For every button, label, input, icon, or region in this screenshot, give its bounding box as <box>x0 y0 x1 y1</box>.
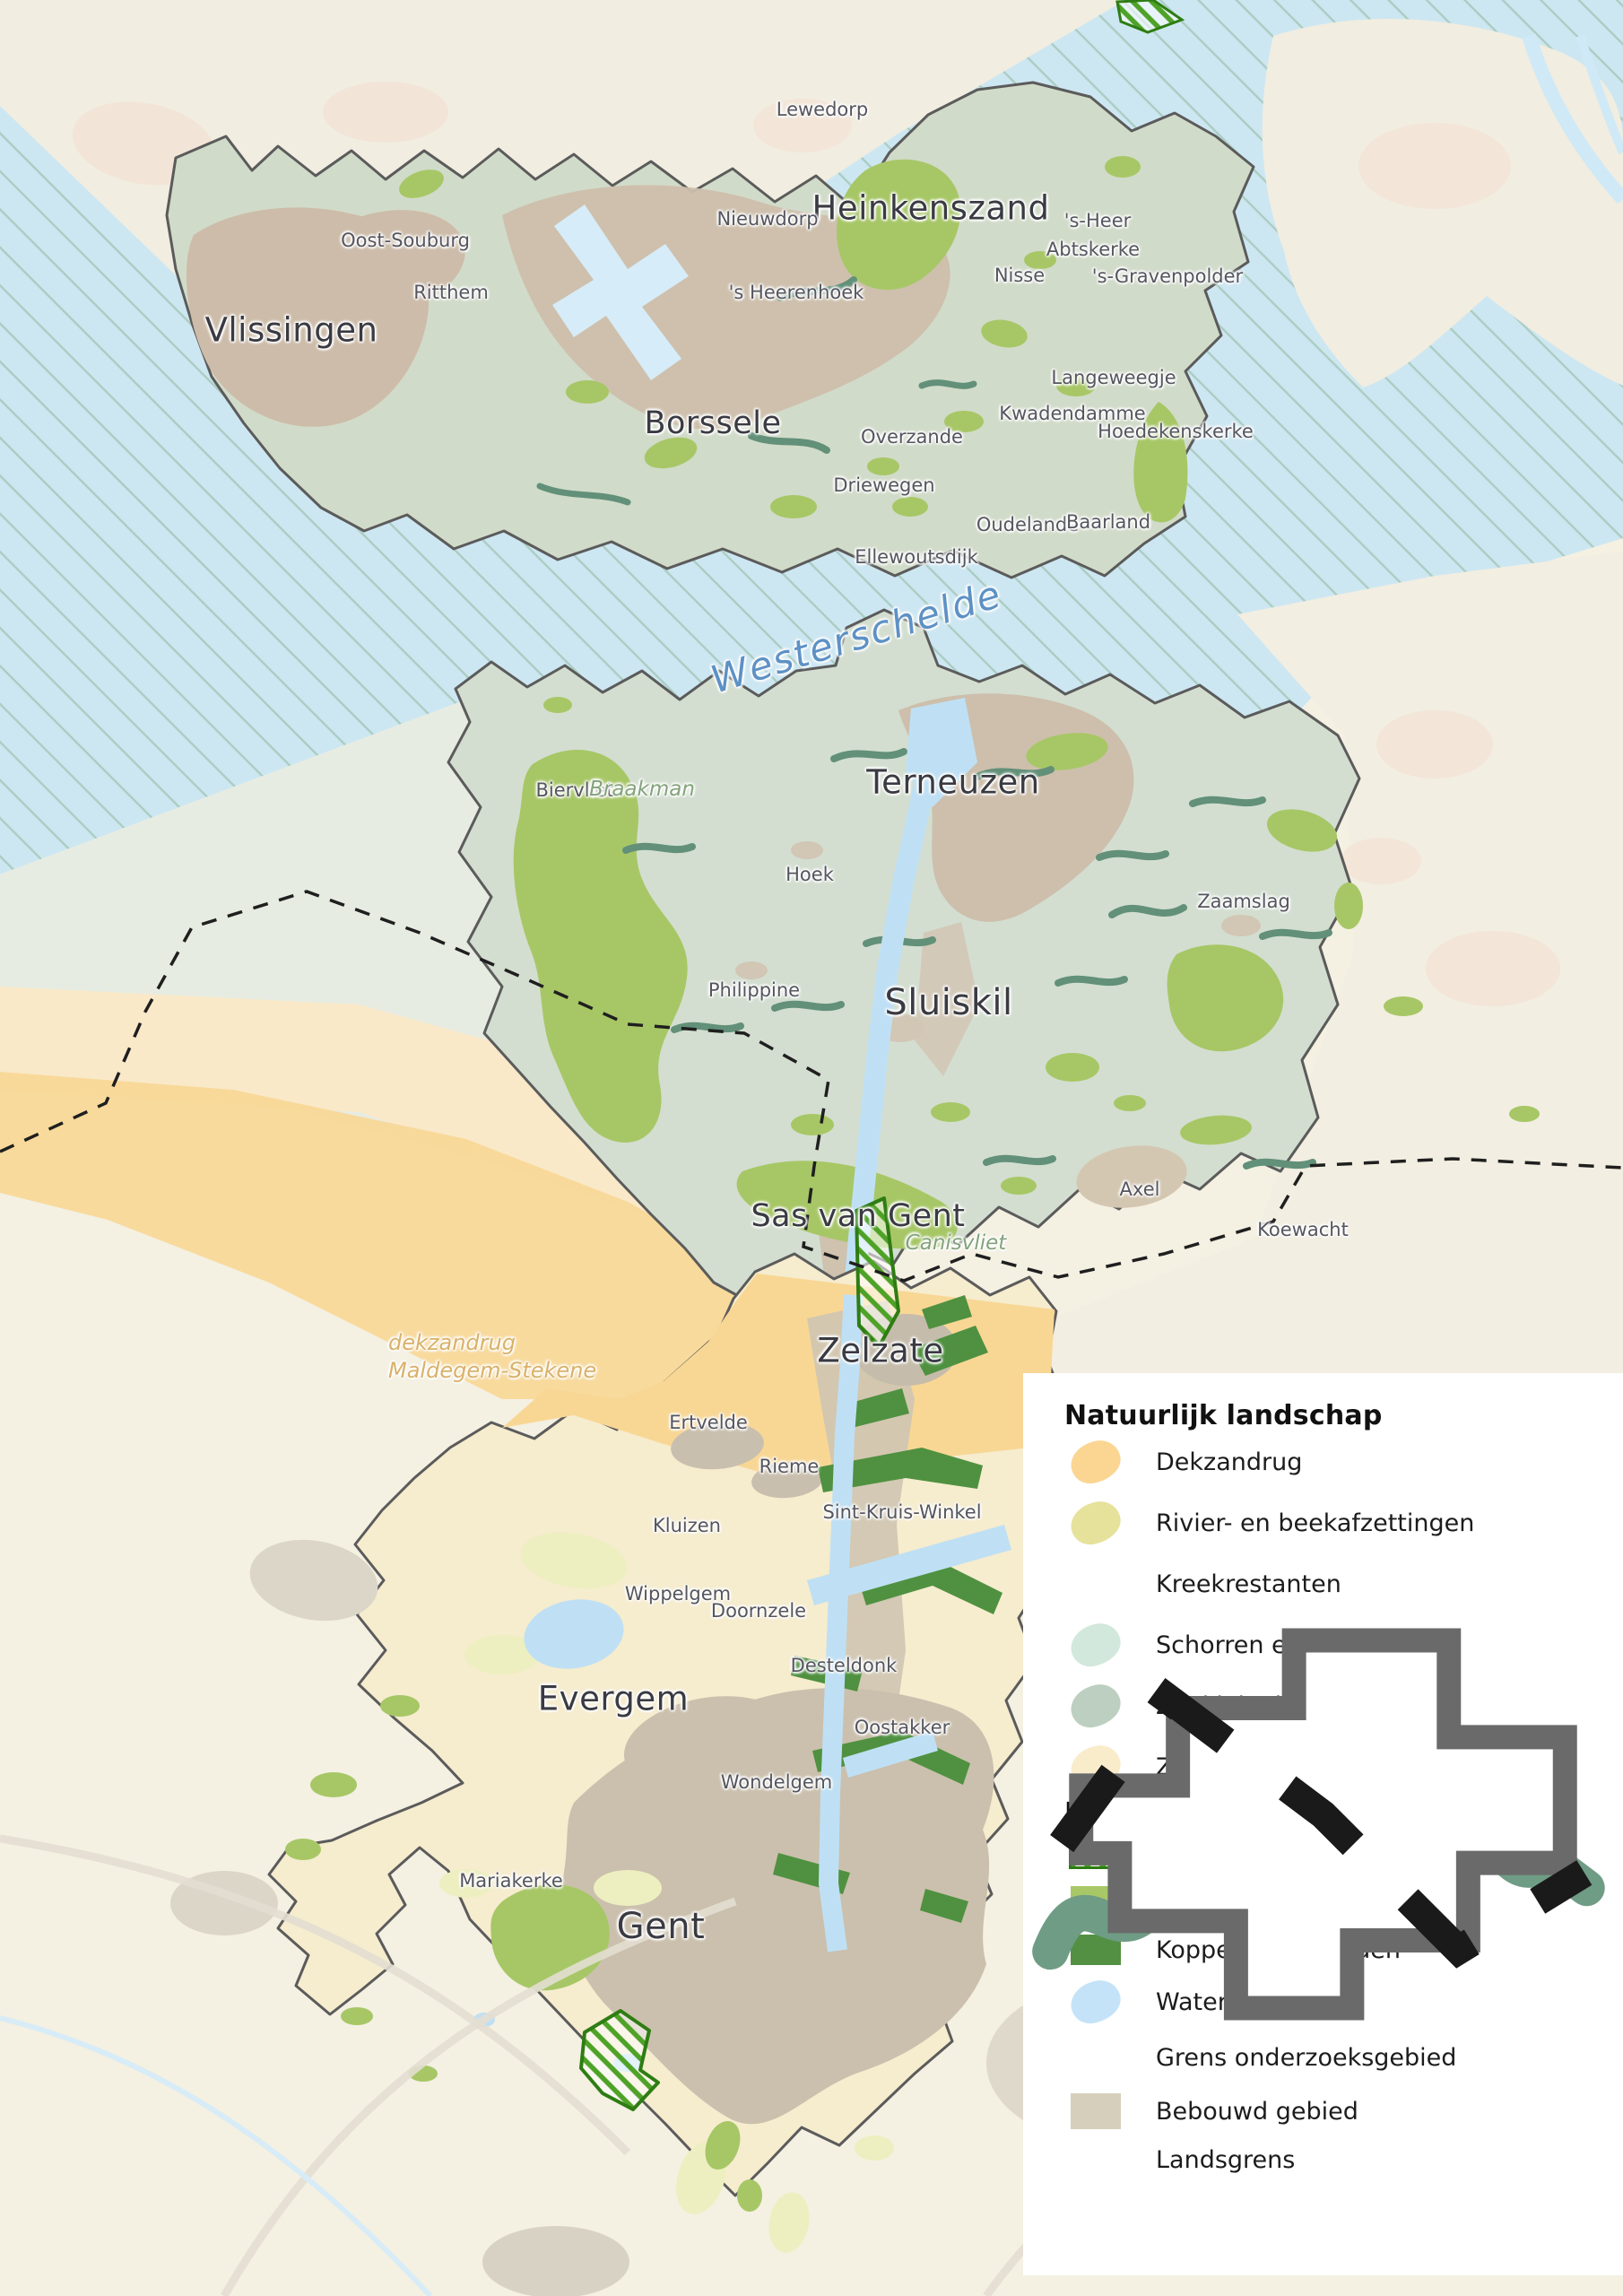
legend-item-landsgrens: Landsgrens <box>1064 2137 1605 2182</box>
legend-nature-group: Natura2000 VEN & NNN Koppelingsgebieden … <box>1064 1829 1605 2182</box>
map-screenshot: VlissingenBorsseleHeinkenszandTerneuzenS… <box>0 0 1623 2296</box>
legend-panel: Natuurlijk landschap Dekzandrug Rivier- … <box>1023 1373 1623 2275</box>
